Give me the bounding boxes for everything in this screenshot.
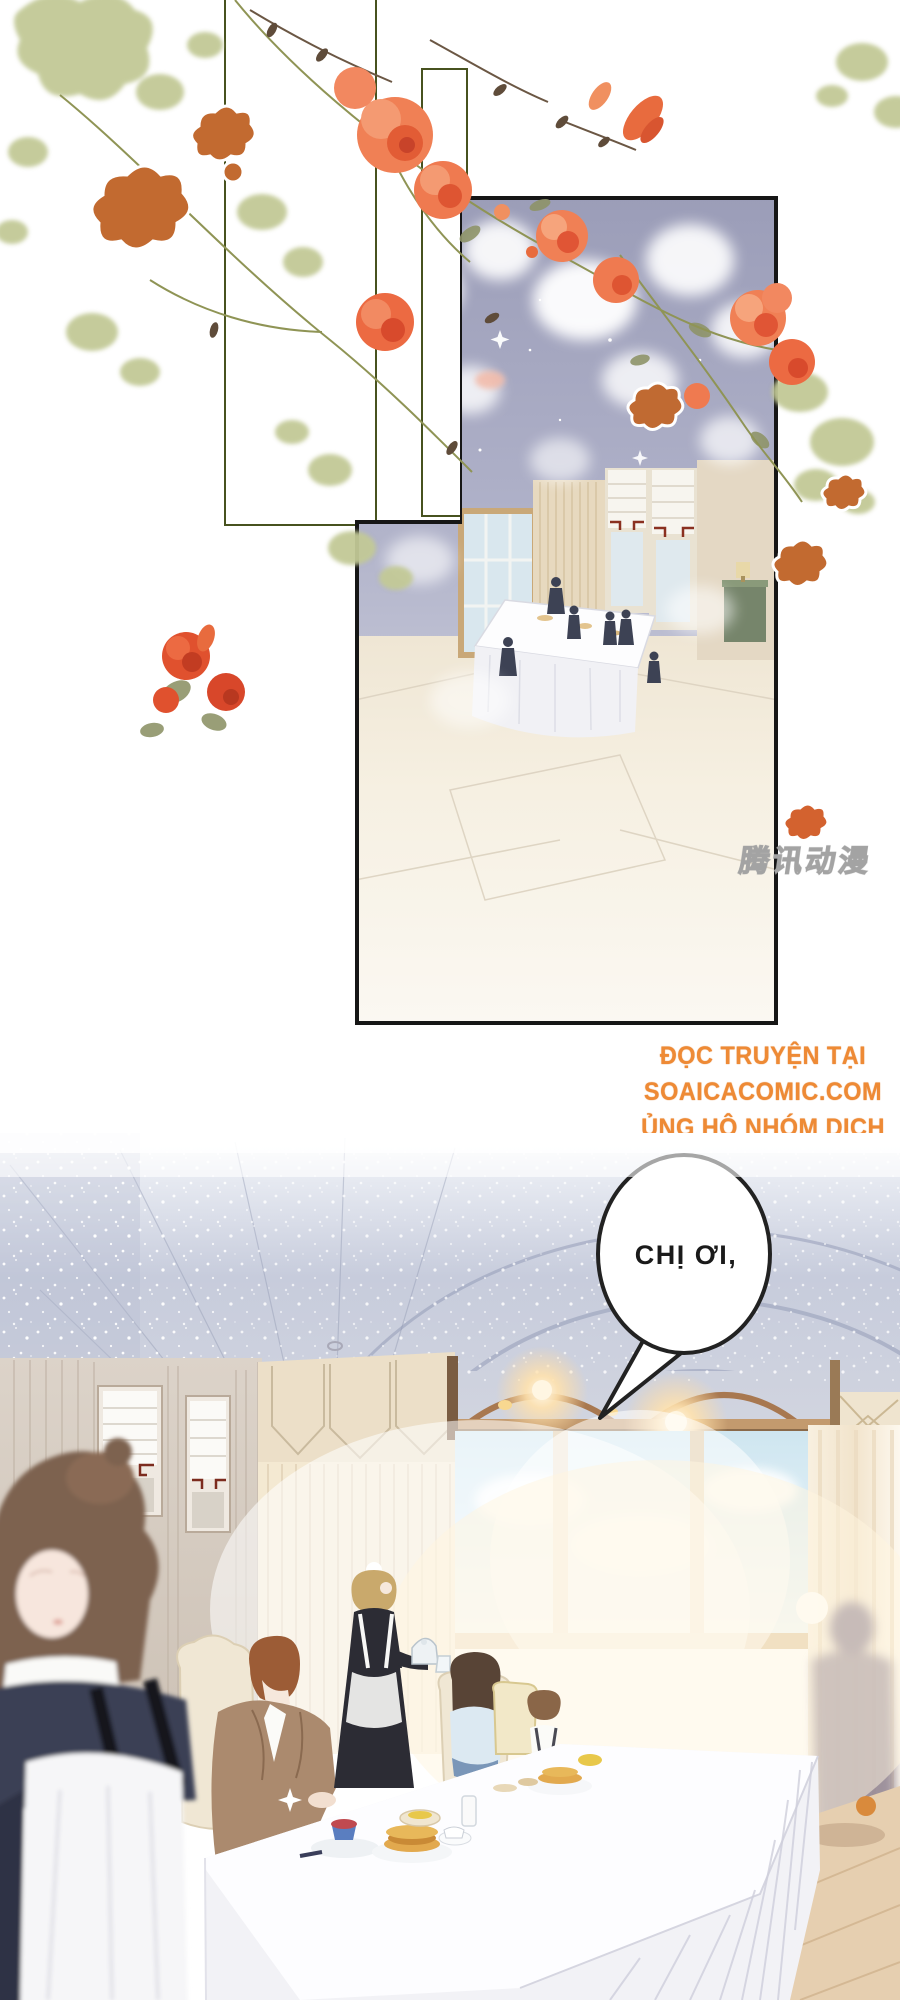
bottom-panel: CHỊ ƠI, [0,1133,900,2000]
coral-flowers [153,67,815,713]
credits-line-1: ĐỌC TRUYỆN TẠI [627,1038,900,1074]
olive-leaves [139,197,772,739]
flower-vine-overlay [0,0,900,1150]
left-window-2 [186,1396,230,1532]
vine-stems [60,0,802,502]
credits-block: ĐỌC TRUYỆN TẠI SOAICACOMIC.COM ỦNG HỘ NH… [627,1038,900,1146]
comic-page: 腾讯动漫 ĐỌC TRUYỆN TẠI SOAICACOMIC.COM ỦNG … [0,0,900,2000]
watermark: 腾讯动漫 [737,836,900,880]
speech-bubble-text: CHỊ ƠI, [635,1240,738,1270]
credits-line-2: SOAICACOMIC.COM [627,1074,900,1110]
bottom-panel-scene: CHỊ ƠI, [0,1133,900,2000]
rust-flowers [92,106,866,841]
